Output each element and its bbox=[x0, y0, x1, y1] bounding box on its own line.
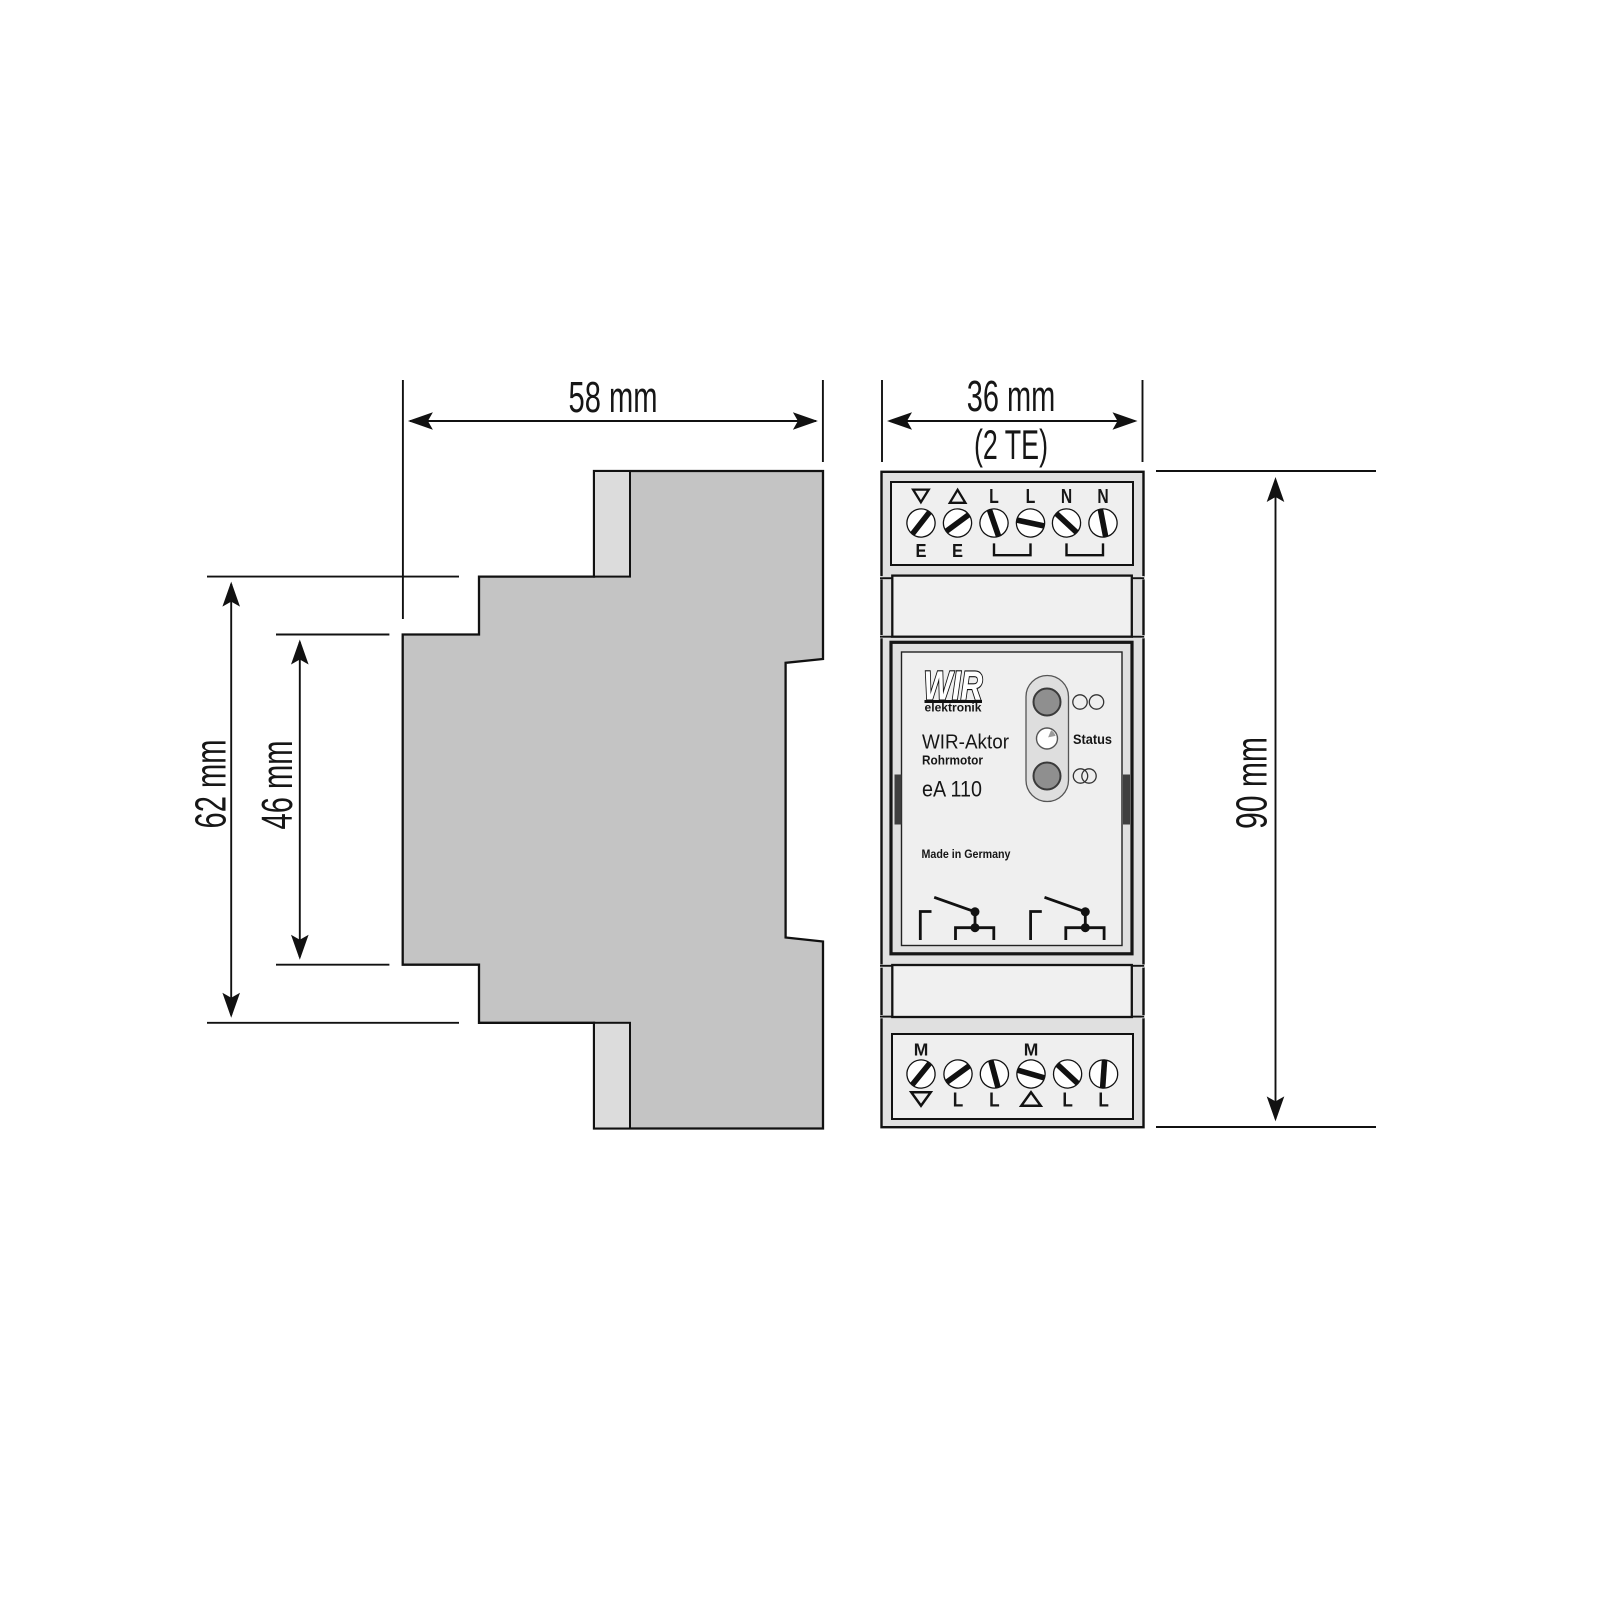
svg-text:L: L bbox=[989, 486, 999, 508]
svg-text:E: E bbox=[952, 540, 963, 561]
svg-text:58 mm: 58 mm bbox=[569, 373, 658, 422]
svg-text:N: N bbox=[1097, 486, 1108, 508]
svg-text:E: E bbox=[916, 540, 927, 561]
svg-text:90 mm: 90 mm bbox=[1227, 737, 1276, 829]
svg-text:WIR-Aktor: WIR-Aktor bbox=[922, 731, 1009, 753]
svg-text:L: L bbox=[989, 1090, 1000, 1112]
svg-text:62 mm: 62 mm bbox=[187, 740, 236, 829]
svg-text:L: L bbox=[953, 1090, 964, 1112]
svg-text:eA 110: eA 110 bbox=[922, 777, 982, 802]
svg-text:Rohrmotor: Rohrmotor bbox=[922, 753, 983, 768]
svg-text:Made in Germany: Made in Germany bbox=[922, 849, 1012, 861]
svg-text:Status: Status bbox=[1073, 731, 1112, 747]
svg-text:elektronik: elektronik bbox=[925, 703, 983, 715]
svg-text:46 mm: 46 mm bbox=[253, 741, 302, 830]
svg-text:M: M bbox=[914, 1039, 929, 1059]
svg-text:L: L bbox=[1062, 1090, 1073, 1112]
svg-text:M: M bbox=[1024, 1039, 1039, 1059]
svg-text:L: L bbox=[1098, 1090, 1109, 1112]
svg-text:L: L bbox=[1026, 486, 1036, 508]
svg-text:N: N bbox=[1061, 486, 1072, 508]
svg-text:(2 TE): (2 TE) bbox=[974, 421, 1048, 468]
svg-text:36 mm: 36 mm bbox=[967, 372, 1056, 421]
